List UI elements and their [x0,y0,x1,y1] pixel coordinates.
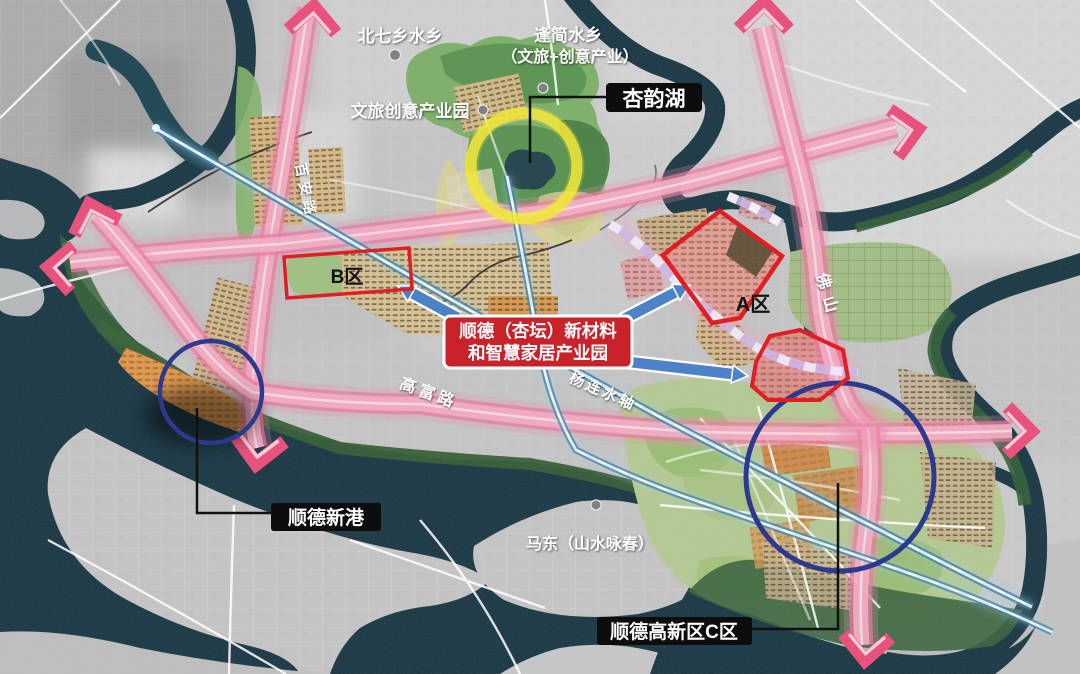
svg-text:（文旅+创意产业）: （文旅+创意产业） [501,47,638,66]
svg-text:文旅创意产业园: 文旅创意产业园 [351,101,470,121]
svg-text:马东（山水咏春）: 马东（山水咏春） [526,534,654,553]
svg-text:顺德高新区C区: 顺德高新区C区 [610,620,738,643]
svg-text:A区: A区 [736,294,770,316]
svg-text:和智慧家居产业园: 和智慧家居产业园 [468,343,608,363]
svg-text:顺德新港: 顺德新港 [288,506,365,529]
svg-text:北七乡水乡: 北七乡水乡 [358,26,443,46]
svg-text:杏韵湖: 杏韵湖 [623,87,686,111]
svg-text:B区: B区 [331,267,364,288]
svg-text:逢简水乡: 逢简水乡 [534,25,602,45]
svg-text:顺德（杏坛）新材料: 顺德（杏坛）新材料 [459,321,617,341]
